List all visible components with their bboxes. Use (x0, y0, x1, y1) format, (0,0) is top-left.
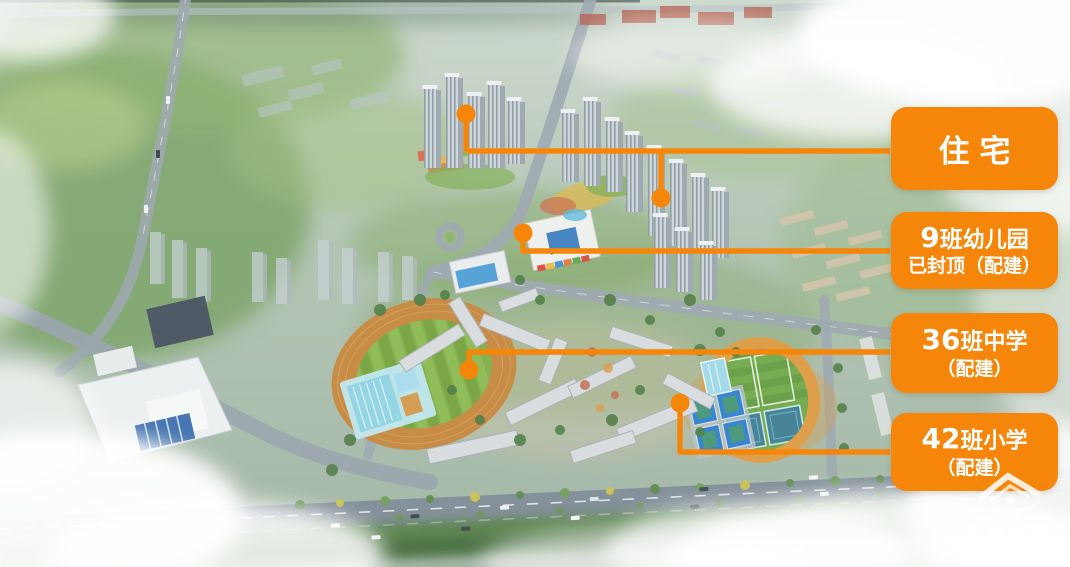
callout-middle-school-note: （配建） (936, 357, 1012, 383)
callout-residential-label: 住宅 (929, 126, 1021, 171)
aerial-marketing-image: 住宅 9班幼儿园 已封顶（配建） 36班中学 （配建） 42班小学 （配建） 买… (0, 0, 1070, 567)
kindergarten-class-count: 9 (920, 221, 939, 254)
callout-middle-school-title: 36班中学 (922, 323, 1028, 357)
callout-middle-school: 36班中学 （配建） (891, 313, 1058, 393)
watermark-brand-cn: 买点好房 (946, 518, 1070, 547)
goodroom-watermark: 买点好房 Good Room (946, 462, 1070, 565)
callout-kindergarten-note: 已封顶（配建） (908, 254, 1041, 280)
primary-school-class-count: 42 (922, 422, 961, 455)
middle-school-class-count: 36 (922, 323, 961, 356)
watermark-brand-en: Good Room (946, 544, 1070, 557)
callout-kindergarten-title: 9班幼儿园 (920, 221, 1029, 255)
roof-logo-icon (972, 464, 1044, 516)
callout-residential: 住宅 (891, 107, 1058, 190)
callout-kindergarten: 9班幼儿园 已封顶（配建） (891, 212, 1058, 289)
callout-primary-school-title: 42班小学 (922, 422, 1028, 456)
